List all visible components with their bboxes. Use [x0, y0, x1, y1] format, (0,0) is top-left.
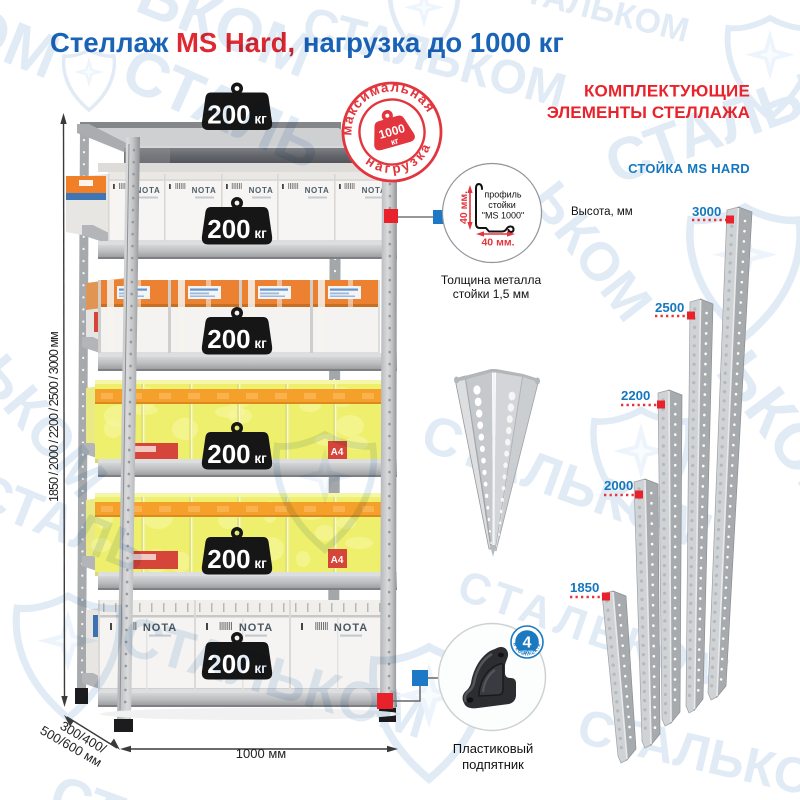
svg-text:штуки: штуки — [520, 649, 534, 654]
svg-text:"MS 1000": "MS 1000" — [482, 211, 524, 221]
svg-text:подпятник: подпятник — [462, 757, 524, 772]
svg-text:стойки: стойки — [488, 200, 516, 210]
svg-text:3000: 3000 — [692, 204, 721, 219]
svg-text:1000 мм: 1000 мм — [236, 746, 286, 761]
svg-text:NOTA: NOTA — [239, 622, 273, 634]
svg-text:КОМПЛЕКТУЮЩИЕ: КОМПЛЕКТУЮЩИЕ — [584, 82, 750, 101]
svg-text:40 мм.: 40 мм. — [458, 191, 470, 224]
svg-text:1850: 1850 — [570, 580, 599, 595]
svg-text:стойки 1,5 мм: стойки 1,5 мм — [453, 287, 530, 301]
svg-text:2200: 2200 — [621, 388, 650, 403]
svg-text:2000: 2000 — [604, 478, 633, 493]
svg-text:NOTA: NOTA — [136, 186, 161, 195]
svg-text:Пластиковый: Пластиковый — [453, 741, 533, 756]
svg-text:NOTA: NOTA — [334, 622, 368, 634]
svg-text:СТОЙКА MS HARD: СТОЙКА MS HARD — [628, 161, 750, 176]
svg-text:Толщина металла: Толщина металла — [441, 273, 542, 287]
svg-text:профиль: профиль — [484, 190, 522, 200]
svg-text:A4: A4 — [331, 555, 344, 566]
svg-text:NOTA: NOTA — [305, 186, 330, 195]
svg-text:1850 / 2000 / 2200 / 2500 / 30: 1850 / 2000 / 2200 / 2500 / 3000 мм — [47, 332, 61, 502]
svg-text:40 мм.: 40 мм. — [481, 237, 514, 249]
svg-text:2500: 2500 — [655, 300, 684, 315]
svg-text:NOTA: NOTA — [249, 186, 274, 195]
svg-text:ЭЛЕМЕНТЫ СТЕЛЛАЖА: ЭЛЕМЕНТЫ СТЕЛЛАЖА — [547, 103, 750, 122]
svg-text:NOTA: NOTA — [192, 186, 217, 195]
svg-text:A4: A4 — [331, 447, 344, 458]
svg-text:Высота, мм: Высота, мм — [571, 206, 633, 218]
